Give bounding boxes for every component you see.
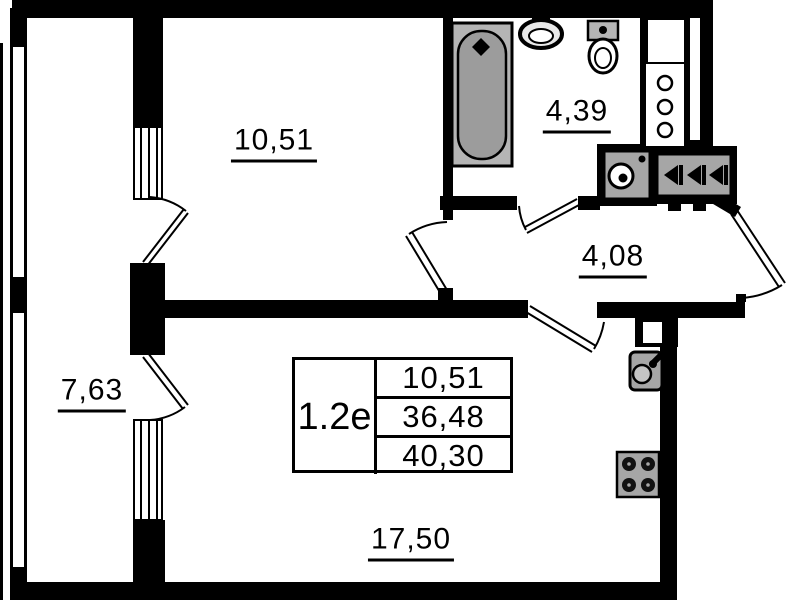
wall-bedroom-door-stub [438,288,453,302]
wall-bathroom-south-right [578,196,600,210]
unit-info-table: 1.2е 10,51 36,48 40,30 [292,357,513,473]
wall-top [12,0,713,18]
electrical-panel-icon [657,154,731,196]
wall-notch [643,322,662,343]
bathroom-area-label: 4,39 [543,95,611,134]
unit-room-area: 10,51 [377,360,510,396]
balcony-window-lower [13,313,24,567]
wall-bathroom-south-left [440,196,517,210]
kitchen-sink-icon [630,352,663,390]
balcony-window-upper [13,47,24,277]
wall-hall-bottom [597,302,745,318]
unit-living-area: 36,48 [377,396,510,435]
shaft-duct-box [648,20,684,62]
toilet-icon [588,21,618,73]
wall-inner-lower [133,520,165,582]
washing-machine-icon [604,151,650,199]
washbasin-icon [520,18,562,48]
panel-tick-right [693,204,706,211]
balcony-outer-line [0,43,3,600]
wall-bedroom-living [165,300,528,318]
shaft-duct-strip [690,18,700,140]
balcony-area-label: 7,63 [58,374,126,413]
floor-plan: 10,51 4,39 4,08 7,63 17,50 1.2е 10,51 36… [0,0,799,600]
wall-inner-upper [133,18,163,127]
ventilation-shaft-icon [658,76,672,137]
unit-type-label: 1.2е [295,360,377,474]
bathtub-icon [452,23,512,166]
wall-bottom [10,582,677,600]
bedroom-area-label: 10,51 [231,124,317,163]
panel-tick-left [668,204,681,211]
wall-inner-pillar [130,263,165,355]
hallway-area-label: 4,08 [579,240,647,279]
floor-plan-drawing [0,0,799,600]
unit-total-area: 40,30 [377,435,510,474]
living-area-label: 17,50 [368,523,454,562]
stove-icon [617,452,659,497]
